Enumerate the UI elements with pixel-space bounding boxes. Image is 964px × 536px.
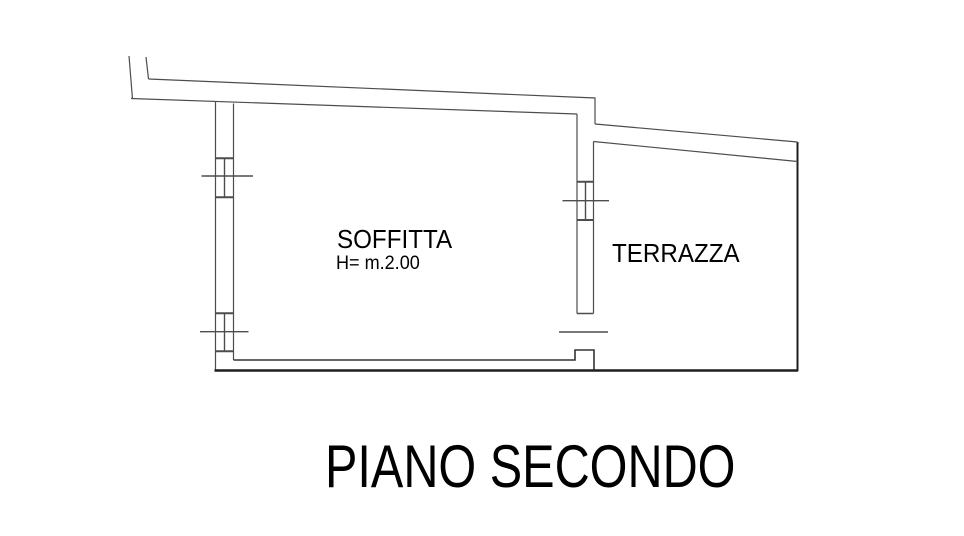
stub-tick-right (146, 57, 149, 79)
floor-title: PIANO SECONDO (325, 437, 735, 497)
top-wall-inner (131, 99, 577, 115)
bottom-wall-inner-edge (234, 350, 595, 370)
terrace-top-inner (594, 142, 798, 162)
stub-tick-left (129, 56, 133, 99)
terrace-top-outer (595, 124, 798, 142)
soffitta-height-note: H= m.2.00 (336, 254, 420, 273)
terrazza-room-label: TERRAZZA (612, 240, 740, 266)
soffitta-room-label: SOFFITTA (337, 226, 452, 252)
floorplan-page: SOFFITTA H= m.2.00 TERRAZZA PIANO SECOND… (0, 0, 964, 536)
